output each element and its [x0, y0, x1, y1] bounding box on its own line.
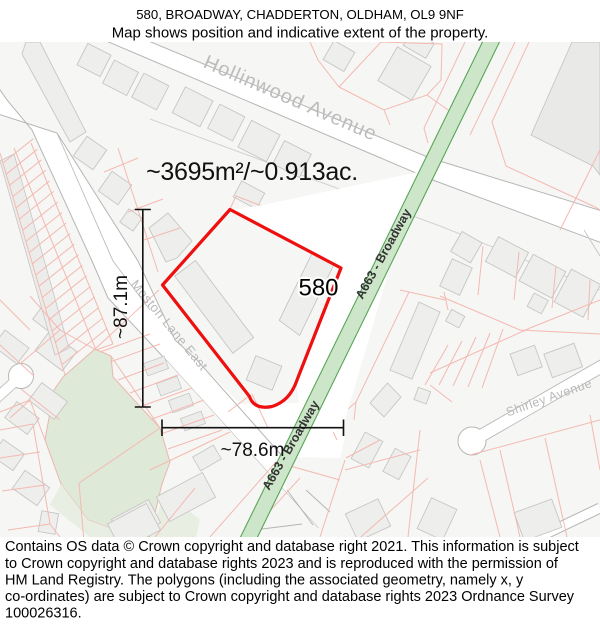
- svg-text:Contains OS data © Crown copyr: Contains OS data © Crown copyright and d…: [5, 539, 579, 555]
- svg-text:100026316.: 100026316.: [5, 606, 82, 622]
- svg-text:Map shows position and indicat: Map shows position and indicative extent…: [112, 25, 489, 42]
- svg-text:~78.6m: ~78.6m: [221, 440, 285, 461]
- svg-text:~87.1m: ~87.1m: [111, 275, 132, 339]
- svg-text:HM Land Registry. The polygons: HM Land Registry. The polygons (includin…: [5, 573, 524, 589]
- svg-text:to Crown copyright and databas: to Crown copyright and database rights 2…: [5, 556, 559, 572]
- svg-text:580, BROADWAY, CHADDERTON, OLD: 580, BROADWAY, CHADDERTON, OLDHAM, OL9 9…: [136, 7, 464, 22]
- svg-text:~3695m²/~0.913ac.: ~3695m²/~0.913ac.: [146, 158, 358, 186]
- svg-text:co-ordinates) are subject to C: co-ordinates) are subject to Crown copyr…: [5, 589, 575, 605]
- svg-text:580: 580: [298, 275, 338, 302]
